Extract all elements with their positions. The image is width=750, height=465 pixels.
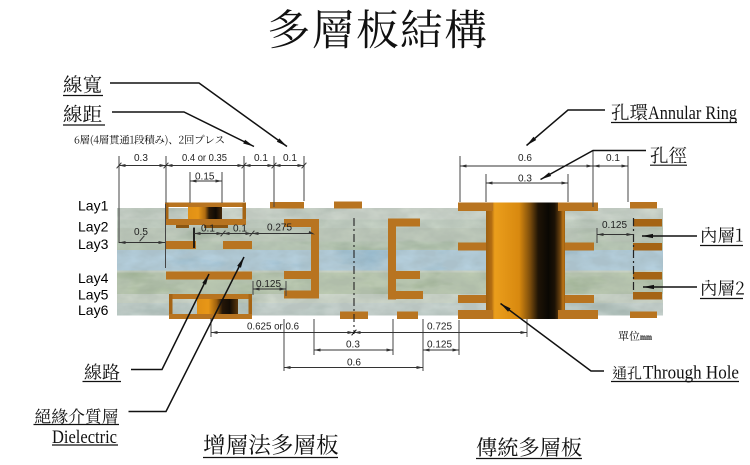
svg-text:0.275: 0.275 (267, 223, 292, 234)
svg-text:mm: mm (640, 333, 652, 343)
svg-text:0.6: 0.6 (347, 358, 361, 369)
svg-text:0.1: 0.1 (201, 224, 215, 235)
svg-text:0.725: 0.725 (427, 322, 452, 333)
svg-text:0.125: 0.125 (427, 340, 452, 351)
svg-text:0.1: 0.1 (606, 153, 620, 164)
svg-text:0.3: 0.3 (346, 340, 360, 351)
svg-text:0.3: 0.3 (518, 174, 532, 185)
svg-text:0.1: 0.1 (233, 224, 247, 235)
svg-text:Lay5: Lay5 (78, 287, 109, 303)
svg-text:Lay2: Lay2 (78, 219, 109, 235)
svg-text:0.1: 0.1 (283, 153, 297, 164)
svg-text:0.4 or 0.35: 0.4 or 0.35 (182, 153, 227, 164)
svg-text:0.5: 0.5 (134, 227, 148, 238)
svg-text:Lay3: Lay3 (78, 236, 109, 252)
svg-text:Through Hole: Through Hole (643, 363, 739, 384)
svg-text:0.1: 0.1 (254, 153, 268, 164)
svg-text:Lay6: Lay6 (78, 302, 109, 318)
svg-text:Dielectric: Dielectric (52, 428, 117, 448)
svg-text:Lay4: Lay4 (78, 270, 109, 286)
svg-text:0.3: 0.3 (134, 153, 148, 164)
svg-text:0.125: 0.125 (602, 220, 627, 231)
svg-text:0.125: 0.125 (256, 279, 281, 290)
svg-text:0.625 or 0.6: 0.625 or 0.6 (247, 322, 299, 333)
svg-text:Lay1: Lay1 (78, 198, 109, 214)
svg-text:0.15: 0.15 (195, 172, 215, 183)
svg-text:Annular Ring: Annular Ring (648, 103, 737, 124)
svg-text:0.6: 0.6 (518, 153, 532, 164)
